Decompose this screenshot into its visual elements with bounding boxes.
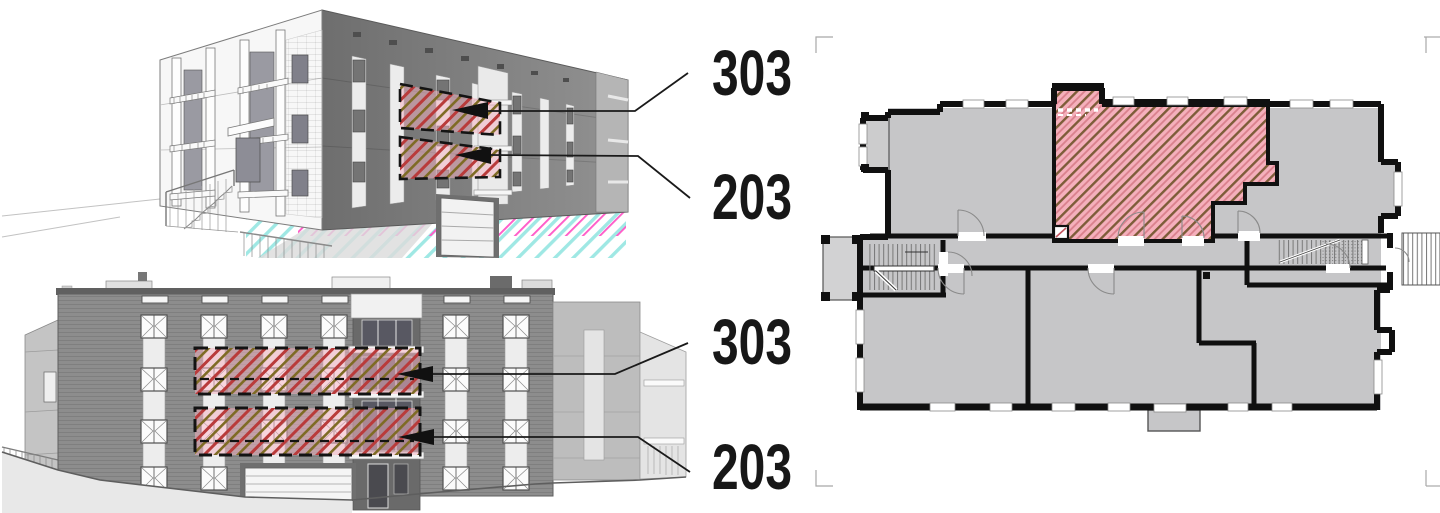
unit-labels: 303 203 303 203 (712, 37, 792, 503)
front-windows (292, 55, 308, 196)
garage-door-elevation (240, 463, 356, 501)
elevation-right-neighbor (553, 302, 686, 480)
east-stoop (1402, 233, 1440, 285)
site-lines (2, 199, 160, 237)
building-front-face (160, 10, 322, 232)
entry-door (368, 464, 388, 508)
elevation-view (2, 272, 686, 513)
far-end-balconies (596, 72, 628, 212)
south-balcony (1148, 410, 1200, 431)
elevation-unit-303-hatch (195, 348, 420, 394)
elevation-unit-203-hatch (195, 408, 420, 455)
unit-label-elevation-203: 203 (712, 431, 792, 503)
perspective-view (2, 10, 628, 258)
drawing-sheet: 303 203 303 203 (0, 0, 1440, 513)
left-stairwell (868, 244, 938, 290)
unit-label-elevation-303: 303 (712, 306, 792, 378)
west-porch (823, 237, 860, 300)
architectural-drawing: 303 203 303 203 (0, 0, 1440, 513)
right-stairwell (1277, 240, 1368, 264)
unit-label-perspective-303: 303 (712, 37, 792, 109)
garage-door-3d (436, 194, 499, 258)
elevation-center-bay (349, 294, 424, 510)
floor-plan-view (816, 37, 1440, 486)
unit-label-perspective-203: 203 (712, 161, 792, 233)
